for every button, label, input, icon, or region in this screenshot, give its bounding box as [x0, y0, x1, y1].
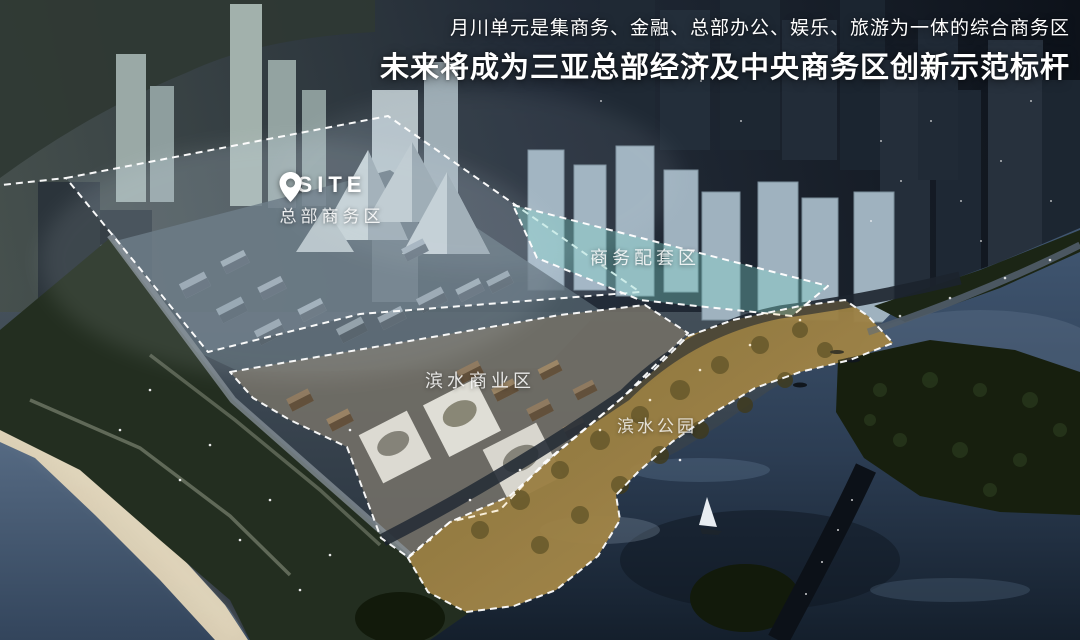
aerial-rendering-canvas: [0, 0, 1080, 640]
site-marker-zone-label: 总部商务区: [280, 202, 385, 227]
zone-label-waterfront-park: 滨水公园: [617, 412, 697, 437]
site-marker: SITE 总部商务区: [280, 172, 385, 227]
location-pin-icon: [280, 172, 302, 202]
headline-block: 月川单元是集商务、金融、总部办公、娱乐、旅游为一体的综合商务区 未来将成为三亚总…: [380, 13, 1070, 86]
headline-title: 未来将成为三亚总部经济及中央商务区创新示范标杆: [380, 44, 1070, 86]
headline-subtitle: 月川单元是集商务、金融、总部办公、娱乐、旅游为一体的综合商务区: [380, 13, 1070, 40]
zone-label-business-support: 商务配套区: [590, 244, 700, 270]
zone-label-waterfront-commercial: 滨水商业区: [425, 367, 535, 393]
masterplan-slide: 月川单元是集商务、金融、总部办公、娱乐、旅游为一体的综合商务区 未来将成为三亚总…: [0, 0, 1080, 640]
